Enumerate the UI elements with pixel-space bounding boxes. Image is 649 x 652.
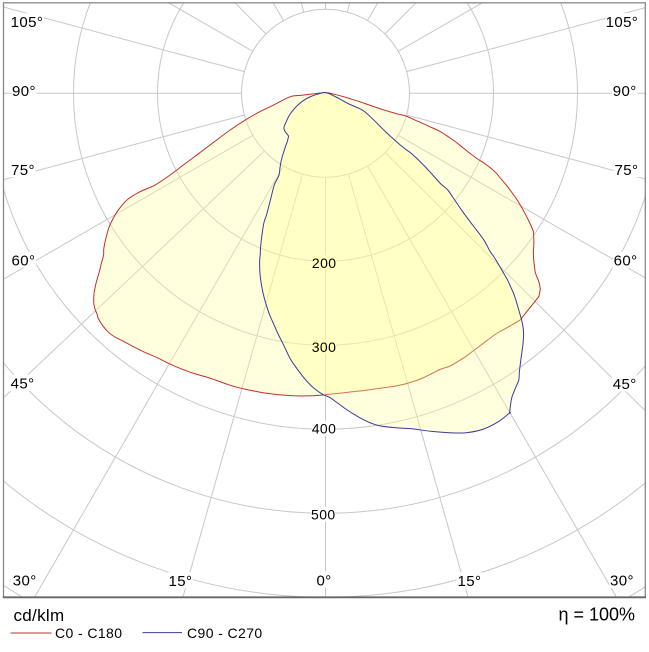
svg-text:15°: 15°: [168, 573, 192, 590]
svg-text:200: 200: [312, 255, 337, 271]
svg-text:60°: 60°: [614, 253, 638, 270]
svg-text:90°: 90°: [12, 83, 36, 100]
svg-text:90°: 90°: [613, 83, 637, 100]
svg-text:0°: 0°: [317, 572, 332, 589]
svg-text:30°: 30°: [13, 573, 37, 590]
svg-text:500: 500: [311, 507, 336, 523]
svg-text:300: 300: [312, 339, 337, 355]
svg-text:15°: 15°: [457, 573, 481, 590]
svg-text:105°: 105°: [606, 14, 639, 31]
svg-text:75°: 75°: [614, 162, 638, 179]
svg-text:105°: 105°: [11, 14, 44, 31]
svg-text:30°: 30°: [610, 573, 634, 590]
svg-text:45°: 45°: [613, 376, 637, 393]
svg-text:η = 100%: η = 100%: [558, 605, 635, 625]
svg-text:C0 - C180: C0 - C180: [55, 625, 122, 641]
svg-text:400: 400: [312, 421, 337, 437]
svg-text:45°: 45°: [11, 376, 35, 393]
svg-text:C90 - C270: C90 - C270: [187, 625, 263, 641]
svg-text:cd/klm: cd/klm: [14, 606, 65, 625]
svg-text:60°: 60°: [12, 253, 36, 270]
svg-text:75°: 75°: [11, 162, 35, 179]
